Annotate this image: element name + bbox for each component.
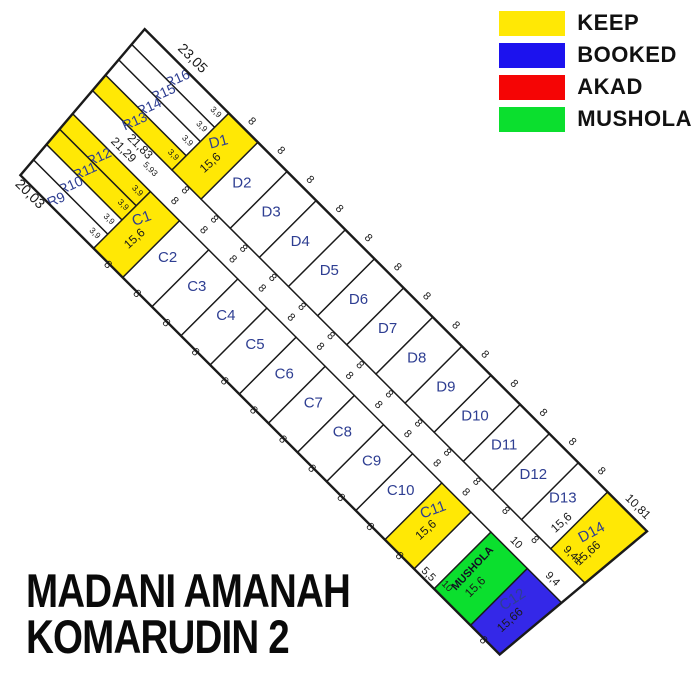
plot-label-C3: C3 [187, 278, 206, 295]
plot-label-D9: D9 [436, 378, 455, 395]
plot-label-D6: D6 [349, 291, 368, 308]
dim-top-D9: 8 [478, 348, 491, 361]
plot-label-D13: D13 [549, 490, 577, 507]
dim-top-D4: 8 [333, 203, 346, 216]
plot-label-C6: C6 [275, 365, 294, 382]
dim-top-D2: 8 [274, 144, 287, 157]
plot-label-D7: D7 [378, 320, 397, 337]
legend-label-akad: AKAD [577, 74, 643, 100]
dim-top-D10: 8 [508, 377, 521, 390]
plot-label-C5: C5 [245, 336, 264, 353]
plot-label-C4: C4 [216, 307, 235, 324]
dim-top-D11: 8 [537, 407, 550, 420]
plot-label-C10: C10 [387, 482, 415, 499]
plot-label-D12: D12 [520, 466, 548, 483]
plot-label-D4: D4 [291, 233, 310, 250]
site-title-line1: MADANI AMANAH [26, 568, 350, 614]
plot-label-D3: D3 [262, 204, 281, 221]
keep-color-swatch [499, 11, 565, 36]
legend-label-keep: KEEP [577, 10, 639, 36]
dim-top-D1: 8 [245, 115, 258, 128]
mushola-color-swatch [499, 107, 565, 132]
akad-color-swatch [499, 75, 565, 100]
plot-label-D8: D8 [407, 349, 426, 366]
plot-label-D2: D2 [232, 175, 251, 192]
dim-top-D13: 8 [595, 465, 608, 478]
dim-top-D7: 8 [420, 290, 433, 303]
plot-label-D10: D10 [461, 408, 489, 425]
plot-label-D11: D11 [491, 437, 517, 454]
legend-row-akad: AKAD [499, 74, 692, 100]
plot-label-C9: C9 [362, 453, 381, 470]
plot-label-C7: C7 [304, 395, 323, 412]
dim-top-D5: 8 [362, 232, 375, 245]
site-title-line2: KOMARUDIN 2 [26, 614, 350, 660]
legend-row-mushola: MUSHOLA [499, 106, 692, 132]
site-title: MADANI AMANAH KOMARUDIN 2 [26, 568, 350, 660]
legend-label-booked: BOOKED [577, 42, 677, 68]
dim-top-D3: 8 [304, 173, 317, 186]
legend-row-booked: BOOKED [499, 42, 692, 68]
legend-row-keep: KEEP [499, 10, 692, 36]
legend: KEEP BOOKED AKAD MUSHOLA [499, 10, 692, 132]
plot-label-C8: C8 [333, 424, 352, 441]
dim-top-D6: 8 [391, 261, 404, 274]
plot-label-D5: D5 [320, 262, 339, 279]
dim-top-D8: 8 [449, 319, 462, 332]
dim-top-D12: 8 [566, 436, 579, 449]
booked-color-swatch [499, 43, 565, 68]
site-plan-image: R163,9R153,9R143,9R133,921,8321,295,93R1… [0, 0, 700, 700]
legend-label-mushola: MUSHOLA [577, 106, 692, 132]
plot-label-C2: C2 [158, 249, 177, 266]
